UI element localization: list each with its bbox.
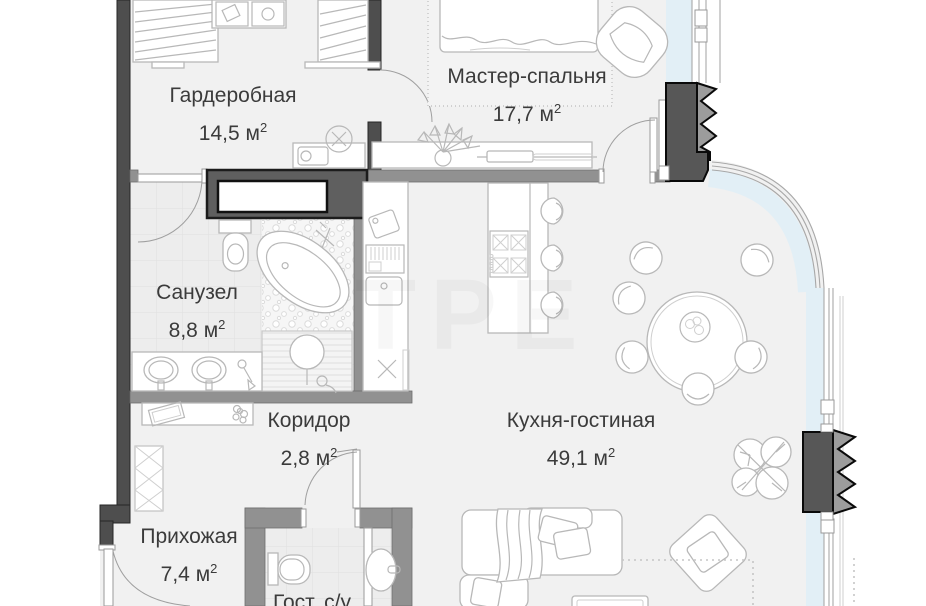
sofa-pillow — [553, 527, 591, 559]
room-name: Гардеробная — [169, 80, 296, 112]
window-mullion — [821, 400, 834, 414]
room-label-bathroom: Санузел 8,8 м2 — [156, 277, 238, 347]
column-right — [803, 432, 833, 512]
column-top-hatch — [697, 83, 716, 160]
room-area: 14,5 м2 — [169, 112, 296, 150]
window-mullion — [695, 28, 707, 42]
room-name: Гост. с/у — [273, 587, 351, 606]
floor-plan: ТРЕ Гардеробная 14,5 м2 Мастер-спальня 1… — [0, 0, 926, 606]
wall-bedroom-south — [368, 170, 604, 182]
room-area: 2,8 м2 — [268, 437, 351, 475]
bed — [440, 0, 598, 52]
room-name: Прихожая — [140, 521, 237, 553]
hall-closet — [135, 446, 163, 511]
room-name: Коридор — [268, 405, 351, 437]
room-area: 49,1 м2 — [507, 437, 656, 475]
wall-west — [117, 0, 130, 506]
room-label-master-bedroom: Мастер-спальня 17,7 м2 — [447, 61, 606, 131]
guest-toilet — [268, 553, 310, 585]
room-label-guest-wc: Гост. с/у — [273, 587, 351, 606]
room-area: 17,7 м2 — [447, 93, 606, 131]
room-name: Кухня-гостиная — [507, 405, 656, 437]
room-area: 7,4 м2 — [140, 553, 237, 591]
wall-bathroom-south — [130, 391, 412, 403]
hall-console — [142, 402, 253, 426]
kitchen-counter — [363, 182, 409, 391]
wall-west-lower — [100, 521, 113, 546]
wardrobe-closet-left — [133, 0, 218, 68]
bar-stools — [541, 198, 563, 318]
room-name: Санузел — [156, 277, 238, 309]
room-label-kitchen-living: Кухня-гостиная 49,1 м2 — [507, 405, 656, 475]
toilet-bathroom — [219, 220, 251, 271]
wall-west-step — [100, 505, 130, 523]
console-tv — [372, 142, 597, 168]
shower — [262, 331, 352, 393]
coffee-table — [572, 596, 648, 606]
wall-guest-wc-east — [392, 508, 412, 606]
window-mullion — [821, 519, 834, 533]
kitchen-island — [488, 183, 548, 333]
wall-wardrobe-bedroom — [368, 0, 381, 70]
wall-bathroom-stub — [130, 170, 138, 182]
column-right-hatch — [833, 430, 855, 514]
ventilation-shaft — [207, 170, 367, 218]
vanity-sinks — [132, 352, 262, 391]
window-mullion — [695, 10, 707, 26]
room-label-wardrobe: Гардеробная 14,5 м2 — [169, 80, 296, 150]
wall-guest-wc-north — [245, 508, 302, 528]
window-glazing-top — [666, 0, 692, 85]
washer-dryer — [212, 0, 286, 28]
room-label-corridor: Коридор 2,8 м2 — [268, 405, 351, 475]
room-area: 8,8 м2 — [156, 309, 238, 347]
room-name: Мастер-спальня — [447, 61, 606, 93]
room-label-hallway: Прихожая 7,4 м2 — [140, 521, 237, 591]
